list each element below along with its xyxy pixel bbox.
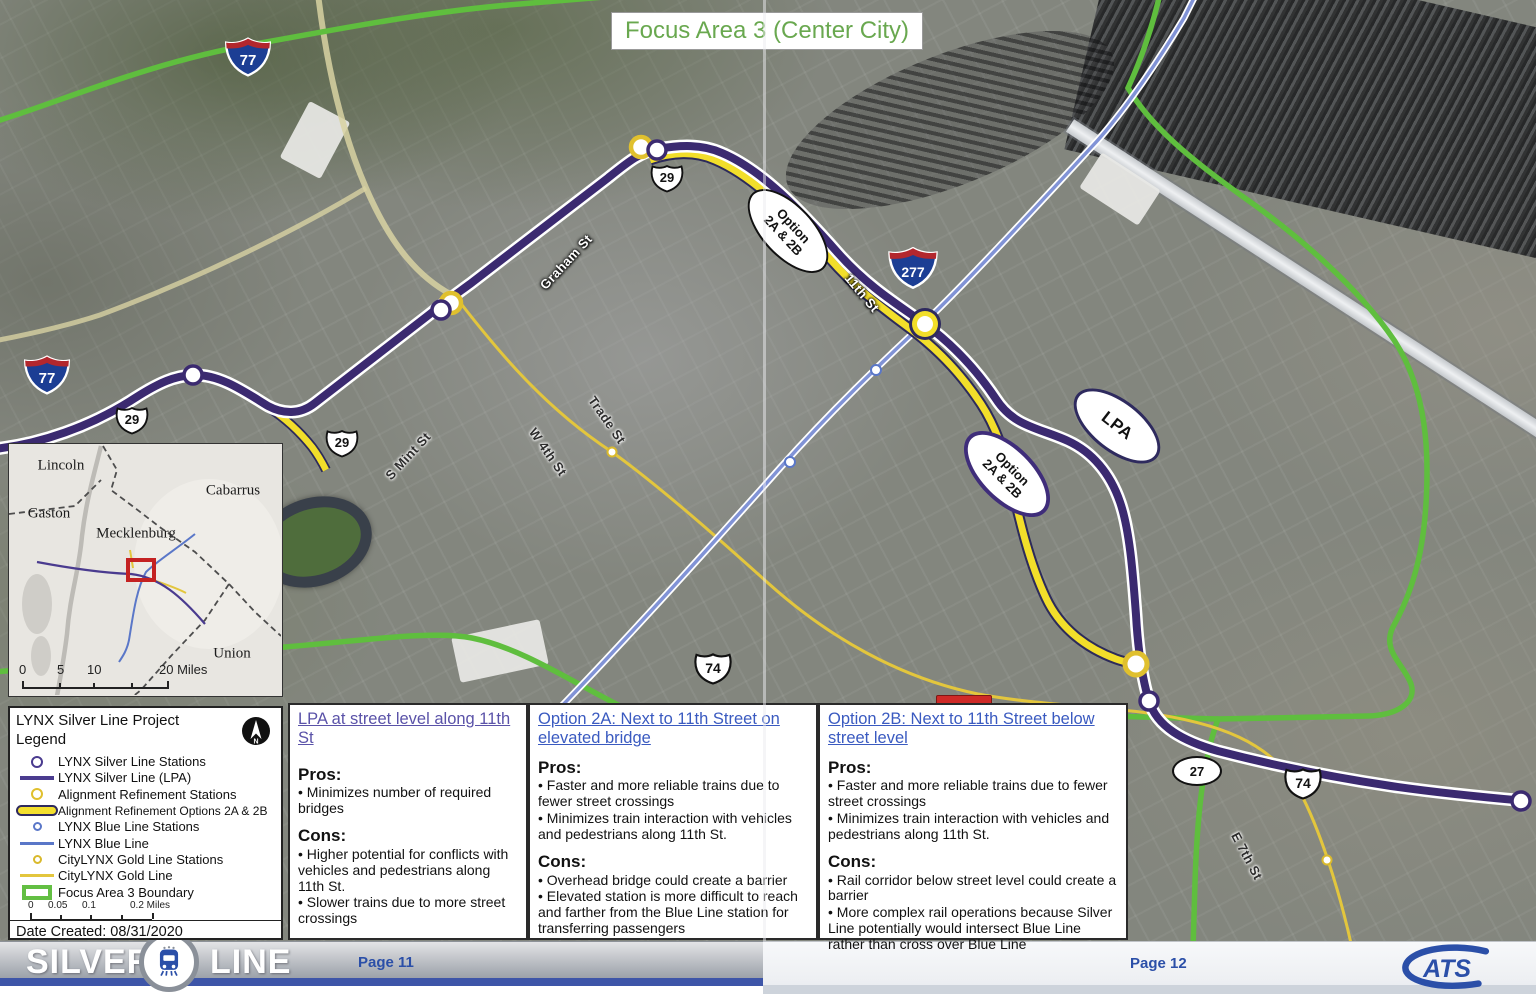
page-number-right: Page 12 bbox=[1130, 955, 1187, 972]
scale-tick-label: 5 bbox=[57, 662, 64, 677]
option-2b-info-box: Option 2B: Next to 11th Street below str… bbox=[818, 703, 1128, 940]
station-core bbox=[917, 316, 933, 332]
nc-27-shield: 27 bbox=[1172, 756, 1222, 786]
scale-tick bbox=[93, 683, 95, 688]
cons-item: Higher potential for conflicts with vehi… bbox=[298, 847, 518, 895]
gold-station-swatch bbox=[33, 855, 42, 864]
silver-line-station bbox=[1512, 792, 1530, 810]
callout-text: LPA bbox=[1098, 408, 1136, 443]
us-74-shield: 74 bbox=[1283, 765, 1323, 800]
scale-tick-label: 0 bbox=[19, 662, 26, 677]
refinement-station-swatch bbox=[31, 788, 43, 800]
shield-number: 29 bbox=[660, 170, 674, 185]
cons-list: Rail corridor below street level could c… bbox=[828, 873, 1118, 954]
scale-tick bbox=[167, 681, 169, 688]
legend-item: LYNX Blue Line bbox=[16, 835, 275, 851]
cats-logo-text: ATS bbox=[1422, 955, 1471, 983]
lpa-info-box: LPA at street level along 11th St Pros: … bbox=[288, 703, 528, 940]
cons-item: Slower trains due to more street crossin… bbox=[298, 895, 518, 927]
inset-scale-bar bbox=[22, 687, 169, 689]
brand-silver: SILVER bbox=[26, 943, 152, 982]
silver-line-station bbox=[648, 141, 666, 159]
pros-item: Faster and more reliable trains due to f… bbox=[538, 778, 808, 810]
road bbox=[318, 0, 452, 295]
scale-tick-label: 0.05 bbox=[48, 900, 67, 911]
cons-list: Overhead bridge could create a barrier E… bbox=[538, 873, 808, 938]
legend-item: Alignment Refinement Options 2A & 2B bbox=[16, 802, 275, 818]
box-title: LPA at street level along 11th St bbox=[298, 710, 518, 749]
silver-station-swatch bbox=[31, 756, 43, 768]
shield-number: 29 bbox=[335, 435, 349, 450]
legend-item: Alignment Refinement Stations bbox=[16, 786, 275, 802]
gold-line-station bbox=[1323, 856, 1332, 865]
county-label: Lincoln bbox=[38, 458, 85, 475]
silver-line-logo bbox=[139, 932, 199, 992]
blue-line-station bbox=[871, 365, 881, 375]
scale-tick bbox=[59, 683, 61, 688]
road bbox=[0, 188, 366, 341]
county-label: Cabarrus bbox=[206, 483, 260, 500]
brand-line: LINE bbox=[210, 943, 291, 982]
cons-item: Overhead bridge could create a barrier bbox=[538, 873, 808, 889]
cons-heading: Cons: bbox=[828, 852, 1118, 871]
box-title: Option 2A: Next to 11th Street on elevat… bbox=[538, 710, 808, 749]
locator-inset-map: Lincoln Gaston Cabarrus Mecklenburg Unio… bbox=[8, 443, 283, 697]
pros-item: Minimizes train interaction with vehicle… bbox=[828, 811, 1118, 843]
legend-item: LYNX Silver Line (LPA) bbox=[16, 770, 275, 786]
boundary-swatch bbox=[22, 885, 52, 900]
footer-left-page: SILVER LINE Page 11 bbox=[0, 941, 763, 994]
blue-station-swatch bbox=[33, 822, 42, 831]
scale-tick-label: 0.1 bbox=[82, 900, 96, 911]
county-label: Union bbox=[213, 646, 251, 663]
pros-item: Minimizes train interaction with vehicle… bbox=[538, 811, 808, 843]
gold-line-station bbox=[608, 448, 617, 457]
scale-tick-label: 0.2 Miles bbox=[130, 900, 170, 911]
scale-tick-label: 20 Miles bbox=[159, 662, 207, 677]
cons-item: Rail corridor below street level could c… bbox=[828, 873, 1118, 905]
legend-item: Focus Area 3 Boundary bbox=[16, 884, 275, 900]
silver-line-station bbox=[184, 366, 202, 384]
gold-line-swatch bbox=[20, 874, 54, 877]
option-line-casing bbox=[650, 154, 1136, 664]
shield-number: 277 bbox=[901, 264, 924, 280]
cons-heading: Cons: bbox=[298, 826, 518, 845]
north-arrow-icon: N bbox=[241, 716, 271, 746]
option-2a-info-box: Option 2A: Next to 11th Street on elevat… bbox=[528, 703, 818, 940]
svg-text:N: N bbox=[253, 739, 258, 746]
cats-logo: ATS bbox=[1388, 943, 1508, 991]
pros-list: Faster and more reliable trains due to f… bbox=[828, 778, 1118, 843]
county-label: Gaston bbox=[28, 506, 71, 523]
cons-item: More complex rail operations because Sil… bbox=[828, 905, 1118, 953]
legend-item: LYNX Silver Line Stations bbox=[16, 754, 275, 770]
blue-line-casing bbox=[556, 0, 1196, 712]
focus-area-boundary bbox=[1128, 0, 1427, 942]
shield-number: 77 bbox=[240, 52, 257, 69]
option-line-swatch bbox=[16, 805, 58, 816]
us-29-shield: 29 bbox=[325, 427, 359, 458]
option-line bbox=[650, 154, 1136, 664]
pros-list: Minimizes number of required bridges bbox=[298, 785, 518, 817]
legend-item: CityLYNX Gold Line bbox=[16, 868, 275, 884]
scale-tick bbox=[131, 683, 133, 688]
legend-title: LYNX Silver Line Project Legend bbox=[16, 712, 216, 750]
silver-line-station bbox=[432, 301, 450, 319]
cons-heading: Cons: bbox=[538, 852, 808, 871]
pros-heading: Pros: bbox=[828, 758, 1118, 777]
alignment-refinement-station bbox=[1125, 653, 1147, 675]
legend-panel: LYNX Silver Line Project Legend N LYNX S… bbox=[8, 706, 283, 940]
box-title: Option 2B: Next to 11th Street below str… bbox=[828, 710, 1118, 749]
map-title: Focus Area 3 (Center City) bbox=[625, 17, 909, 45]
blue-line-swatch bbox=[20, 842, 54, 845]
cons-list: Higher potential for conflicts with vehi… bbox=[298, 847, 518, 928]
legend-item: LYNX Blue Line Stations bbox=[16, 819, 275, 835]
pros-heading: Pros: bbox=[298, 765, 518, 784]
train-icon bbox=[152, 945, 186, 979]
page: 77 77 277 29 29 29 74 74 bbox=[0, 0, 1536, 994]
county-label: Mecklenburg bbox=[96, 526, 176, 543]
shield-number: 74 bbox=[705, 660, 721, 676]
interstate-77-shield: 77 bbox=[225, 37, 271, 77]
scale-tick bbox=[22, 681, 24, 688]
shield-number: 74 bbox=[1295, 775, 1311, 791]
pros-heading: Pros: bbox=[538, 758, 808, 777]
us-74-shield: 74 bbox=[693, 650, 733, 685]
date-created: Date Created: 08/31/2020 bbox=[10, 920, 281, 940]
cons-item: Elevated station is more difficult to re… bbox=[538, 889, 808, 937]
shield-number: 29 bbox=[125, 412, 139, 427]
interstate-77-shield: 77 bbox=[24, 355, 70, 395]
us-29-shield: 29 bbox=[650, 162, 684, 193]
shield-number: 27 bbox=[1190, 764, 1204, 779]
page-number-left: Page 11 bbox=[358, 954, 414, 971]
interstate-277-shield: 277 bbox=[888, 247, 938, 289]
shield-number: 77 bbox=[39, 370, 56, 387]
silver-line-swatch bbox=[20, 776, 54, 780]
silver-line-station bbox=[1140, 692, 1158, 710]
blue-line-station bbox=[785, 457, 795, 467]
scale-tick-label: 0 bbox=[28, 900, 34, 911]
legend-item: CityLYNX Gold Line Stations bbox=[16, 851, 275, 867]
pros-item: Faster and more reliable trains due to f… bbox=[828, 778, 1118, 810]
pros-item: Minimizes number of required bridges bbox=[298, 785, 518, 817]
pros-list: Faster and more reliable trains due to f… bbox=[538, 778, 808, 843]
map-title-banner: Focus Area 3 (Center City) bbox=[611, 12, 923, 50]
us-29-shield: 29 bbox=[115, 404, 149, 435]
page-seam bbox=[763, 0, 766, 941]
scale-tick-label: 10 bbox=[87, 662, 101, 677]
